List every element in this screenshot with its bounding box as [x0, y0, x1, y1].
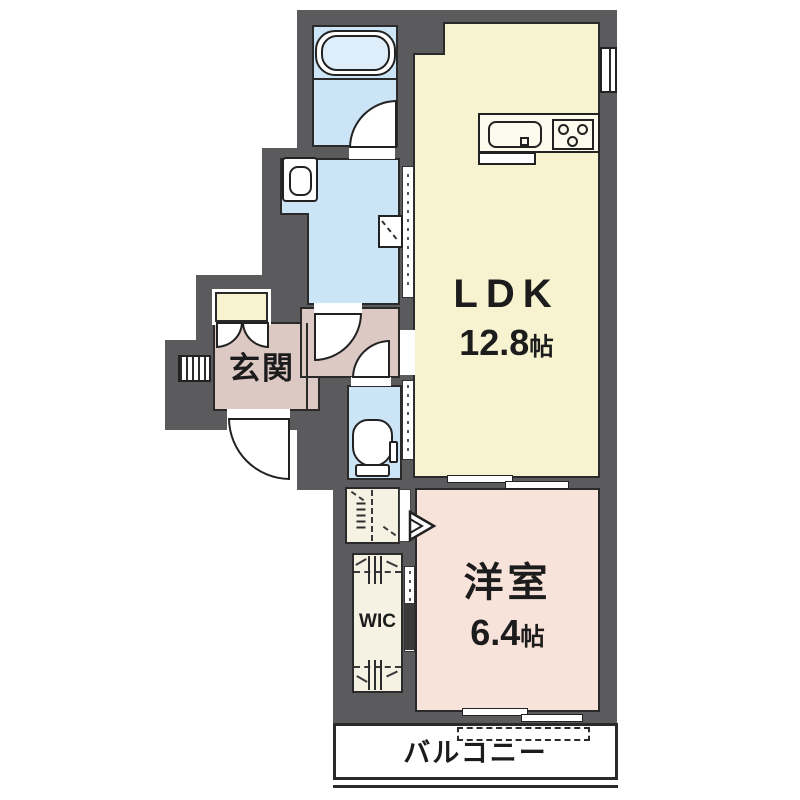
washer-diagonal-dash	[380, 217, 401, 246]
ldk-area: 12.8帖	[413, 325, 600, 361]
ldk-window-mullion	[609, 49, 611, 91]
wall-entrance-left	[165, 340, 196, 430]
stove-burner-3	[567, 136, 578, 147]
storage-center-dash	[371, 490, 373, 541]
entrance-label: 玄関	[210, 353, 314, 384]
floor-plan: LDK 12.8帖 洋室 6.4帖 玄関 WIC バルコニー	[0, 0, 800, 800]
washroom-door-opening	[314, 303, 362, 313]
western-balcony-window-panel2	[521, 714, 583, 722]
kitchen-sink-drain	[520, 137, 529, 146]
ldk-window	[600, 47, 617, 93]
kitchen-counter-end	[478, 152, 536, 165]
kitchen-counter	[478, 113, 600, 153]
western-area-value: 6.4	[470, 612, 520, 653]
wic-sliding-door-leaf	[405, 603, 414, 650]
balcony-outer-edge	[333, 785, 618, 788]
toilet-flush-unit	[389, 441, 398, 463]
bathroom-door-opening	[349, 148, 395, 159]
stove-burner-1	[558, 124, 569, 135]
western-balcony-window-panel1	[462, 708, 528, 716]
shoe-cabinet	[215, 292, 268, 322]
toilet-door-opening	[351, 377, 391, 386]
kitchen-stove	[552, 119, 594, 150]
western-area-unit: 帖	[520, 624, 544, 651]
wic-hanger-hatch-top	[368, 556, 382, 584]
wic-hanger-hatch-bottom	[368, 660, 382, 690]
bathtub-deck-line	[312, 78, 398, 80]
washbasin-bowl	[289, 166, 312, 196]
storage-shelf-hatch	[357, 503, 366, 529]
ldk-western-sliding-door-panel2	[505, 481, 569, 489]
bathtub	[315, 30, 396, 76]
washbasin	[282, 157, 318, 202]
kitchen-sink	[488, 121, 542, 148]
door-chevron-icon	[407, 509, 437, 543]
ldk-area-value: 12.8	[459, 322, 529, 363]
bathtub-inner	[321, 35, 390, 71]
wic-label: WIC	[350, 612, 405, 631]
toilet-bowl	[352, 419, 393, 467]
western-room-label: 洋室	[415, 563, 600, 603]
stove-burner-2	[577, 124, 588, 135]
western-room-area: 6.4帖	[415, 615, 600, 651]
entrance-door-arc	[228, 418, 290, 480]
ldk-western-sliding-door-panel1	[447, 475, 513, 483]
toilet-tank	[355, 464, 390, 477]
meter-box	[178, 355, 211, 382]
washer-space	[378, 215, 403, 248]
balcony-label: バルコニー	[333, 740, 618, 767]
ldk-area-unit: 帖	[529, 334, 553, 361]
ldk-sliding-door-pocket-lower	[402, 380, 414, 460]
ldk-join	[445, 51, 598, 56]
ldk-label: LDK	[413, 274, 600, 314]
